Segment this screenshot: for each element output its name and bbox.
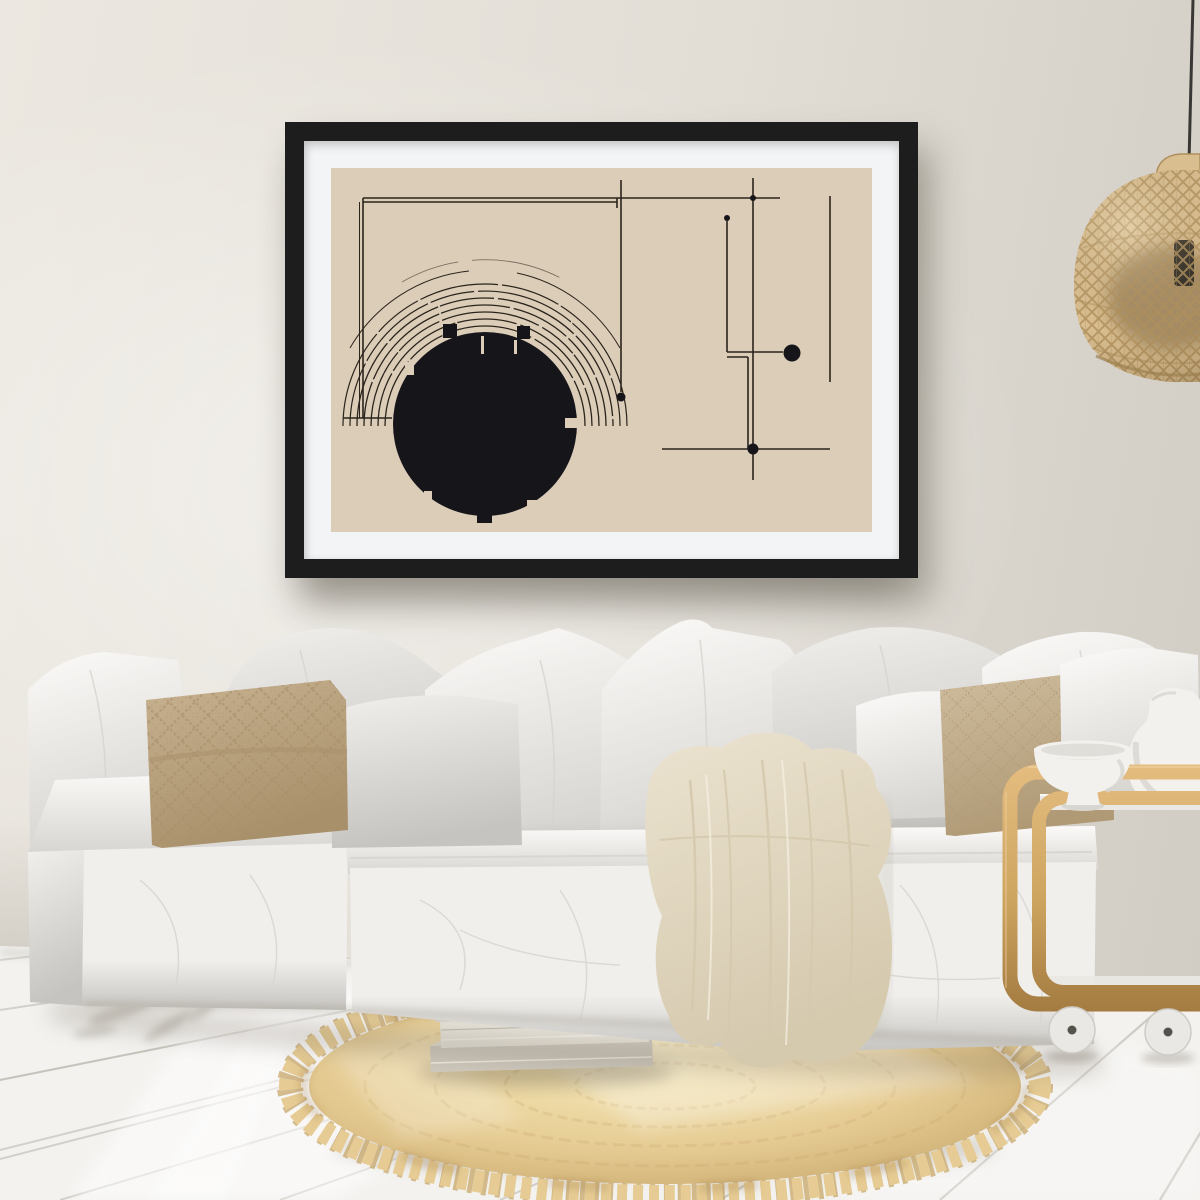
- pendant-lamp: [1074, 0, 1200, 382]
- lamp-cord: [1189, 0, 1193, 162]
- scene-svg: [0, 0, 1200, 1200]
- bowl-interior: [1041, 744, 1125, 757]
- cart-wheel: [1145, 1009, 1191, 1055]
- sofa-module-side: [28, 850, 86, 1006]
- sofa-module-front: [82, 843, 348, 1010]
- cart-wheel: [1049, 1007, 1095, 1053]
- living-room-scene: [0, 0, 1200, 1200]
- pillow-beige-knit: [146, 680, 348, 848]
- throw-blanket: [645, 732, 892, 1067]
- lamp-body: [1074, 170, 1200, 382]
- pillow-grey-front: [330, 695, 522, 848]
